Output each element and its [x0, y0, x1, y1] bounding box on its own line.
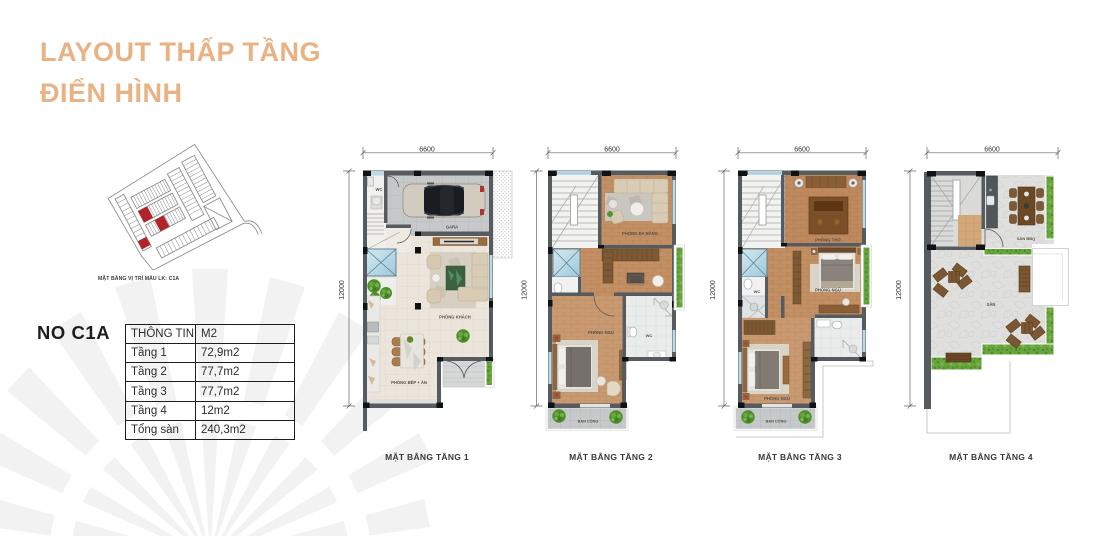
svg-text:PHÒNG BẾP + ĂN: PHÒNG BẾP + ĂN — [391, 380, 427, 385]
svg-text:WC: WC — [646, 333, 653, 338]
svg-text:MẶT BẰNG VỊ TRÍ MẪU LK: C1A: MẶT BẰNG VỊ TRÍ MẪU LK: C1A — [98, 274, 179, 282]
svg-text:6600: 6600 — [794, 147, 810, 154]
svg-text:PHÒNG THỜ: PHÒNG THỜ — [815, 238, 841, 243]
svg-text:PHÒNG KHÁCH: PHÒNG KHÁCH — [439, 315, 471, 320]
svg-text:PHÒNG NGỦ: PHÒNG NGỦ — [815, 288, 841, 293]
svg-text:PHÒNG NGỦ: PHÒNG NGỦ — [764, 396, 790, 401]
svg-text:6600: 6600 — [419, 147, 435, 154]
svg-text:WC: WC — [754, 289, 761, 294]
svg-text:SÂN BBQ: SÂN BBQ — [1017, 236, 1035, 241]
svg-text:12000: 12000 — [710, 280, 717, 300]
svg-text:12000: 12000 — [896, 280, 903, 300]
svg-text:BAN CÔNG: BAN CÔNG — [578, 419, 599, 424]
svg-text:BAN CÔNG: BAN CÔNG — [766, 419, 787, 424]
svg-text:6600: 6600 — [604, 147, 620, 154]
svg-text:PHÒNG NGỦ: PHÒNG NGỦ — [588, 330, 614, 335]
svg-text:WC: WC — [376, 187, 383, 192]
svg-text:6600: 6600 — [984, 147, 1000, 154]
svg-text:12000: 12000 — [522, 280, 529, 300]
svg-text:GARA: GARA — [446, 225, 458, 230]
svg-text:SÂN: SÂN — [987, 302, 996, 307]
svg-text:12000: 12000 — [339, 280, 346, 300]
svg-text:PHÒNG ĐA NĂNG: PHÒNG ĐA NĂNG — [622, 231, 658, 236]
